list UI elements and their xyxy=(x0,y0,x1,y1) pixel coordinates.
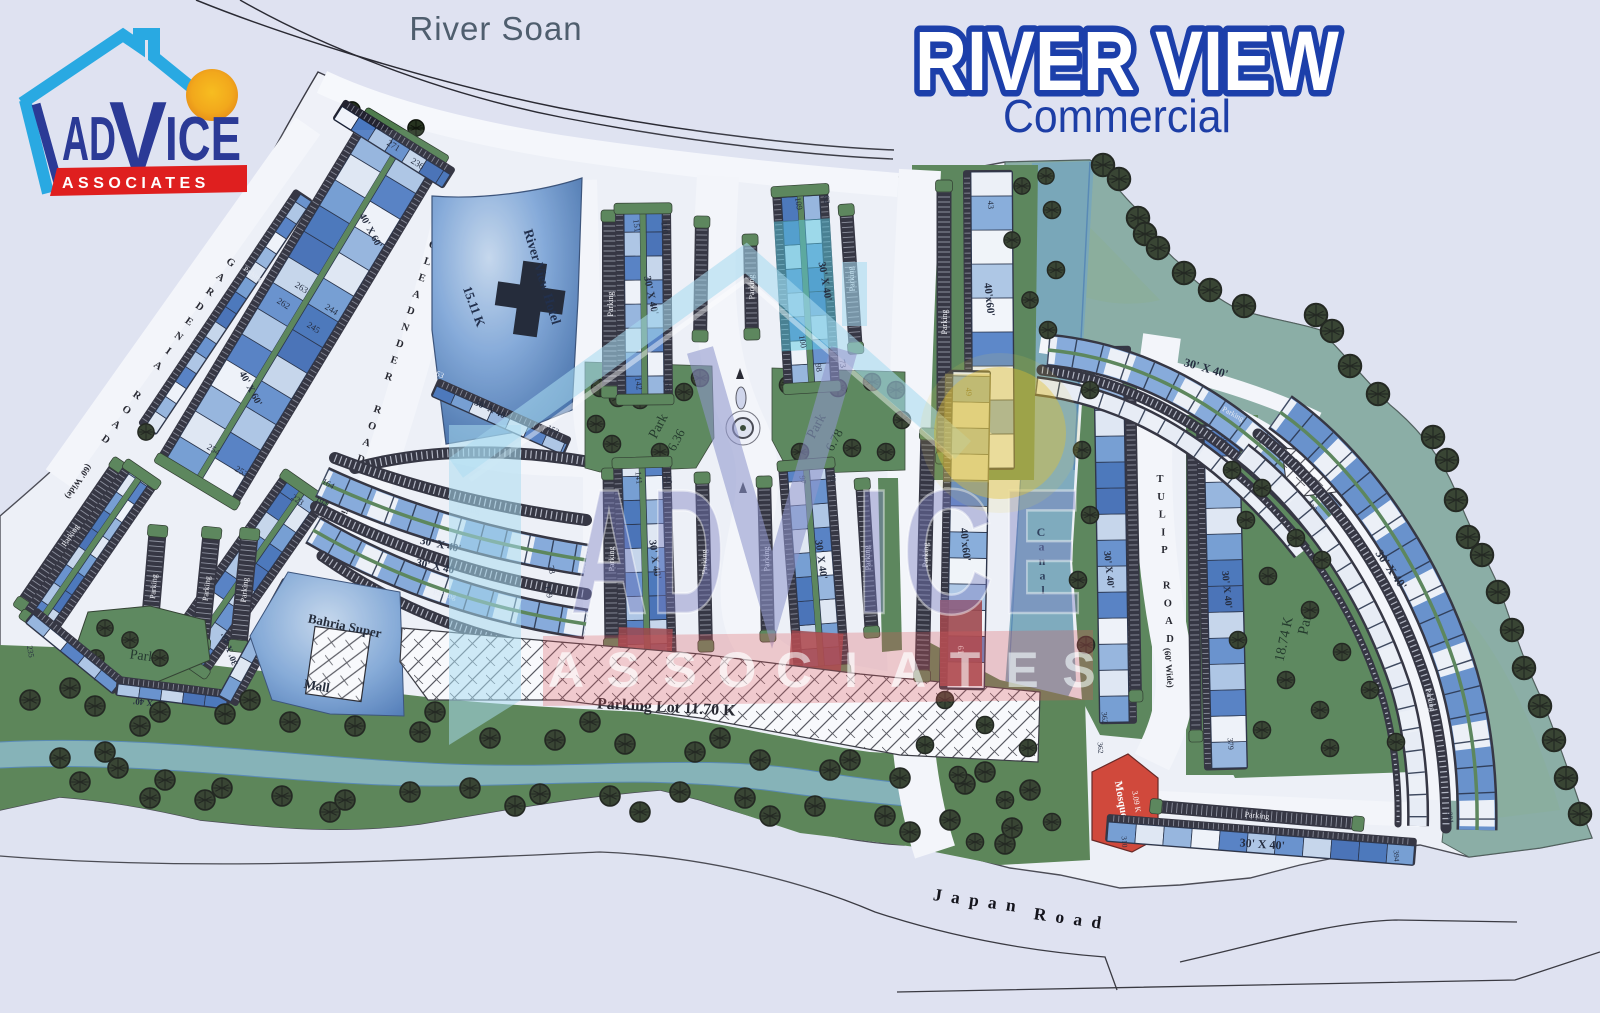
svg-text:ICE: ICE xyxy=(165,105,241,174)
svg-text:ASSOCIATES: ASSOCIATES xyxy=(62,175,210,192)
svg-text:S: S xyxy=(663,642,696,698)
svg-text:A: A xyxy=(570,452,648,651)
svg-text:T: T xyxy=(950,642,981,698)
svg-text:O: O xyxy=(718,642,757,698)
svg-text:E: E xyxy=(1005,642,1038,698)
svg-text:A: A xyxy=(548,642,584,698)
svg-text:Commercial: Commercial xyxy=(1003,90,1231,142)
svg-text:C: C xyxy=(776,642,812,698)
svg-text:I: I xyxy=(844,642,858,698)
svg-text:A: A xyxy=(890,642,926,698)
svg-text:AD: AD xyxy=(62,105,116,174)
svg-text:S: S xyxy=(606,642,639,698)
svg-text:River Soan: River Soan xyxy=(409,10,582,47)
svg-text:S: S xyxy=(1062,642,1095,698)
svg-text:D: D xyxy=(651,452,725,651)
svg-text:I: I xyxy=(855,452,893,651)
